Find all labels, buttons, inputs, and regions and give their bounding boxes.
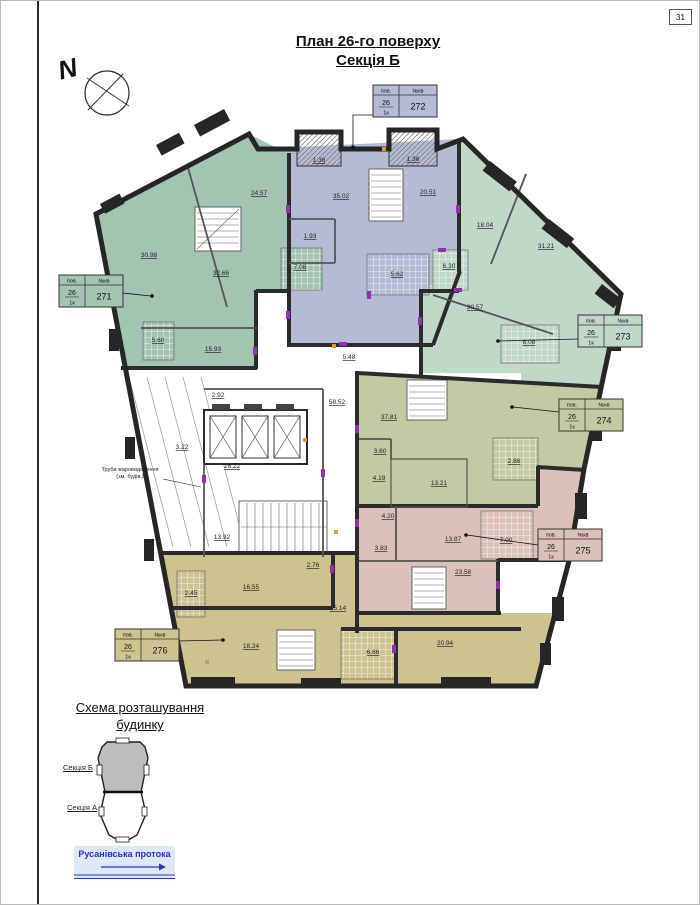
room-area-label: 8.08 bbox=[523, 339, 536, 346]
room-area-label: 15.93 bbox=[205, 346, 222, 353]
apartment-tag-276: пов. №кв 26 1к 276 bbox=[115, 629, 179, 661]
svg-text:пов.: пов. bbox=[67, 279, 78, 285]
room-area-label: 7.00 bbox=[500, 537, 513, 544]
svg-text:№кв: №кв bbox=[577, 533, 588, 539]
room-area-label: 13.21 bbox=[431, 480, 448, 487]
svg-text:пов.: пов. bbox=[381, 89, 392, 95]
room-area-label: 20.51 bbox=[420, 189, 437, 196]
apartment-number: 274 bbox=[596, 416, 611, 426]
svg-text:пов.: пов. bbox=[586, 319, 597, 325]
river-label: Русанівська протока bbox=[74, 849, 175, 859]
room-area-label: 24.57 bbox=[251, 190, 268, 197]
section-a-label: Секція А bbox=[67, 803, 97, 812]
room-area-label: 37.81 bbox=[381, 414, 398, 421]
room-area-label: 23.58 bbox=[455, 569, 472, 576]
room-area-label: 4.20 bbox=[382, 513, 395, 520]
building-scheme bbox=[97, 738, 149, 842]
svg-text:1к: 1к bbox=[548, 555, 554, 561]
room-area-label: 4.19 bbox=[373, 475, 386, 482]
room-area-label: 18.04 bbox=[477, 222, 494, 229]
section-b-label: Секція Б bbox=[63, 763, 93, 772]
room-area-label: 1.36 bbox=[407, 156, 420, 163]
apartment-number: 272 bbox=[410, 102, 425, 112]
svg-text:1к: 1к bbox=[383, 111, 389, 117]
scheme-title-line-2: будинку bbox=[45, 716, 235, 733]
svg-text:пов.: пов. bbox=[567, 403, 578, 409]
room-area-label: 6.30 bbox=[443, 263, 456, 270]
pipes-note: Труби жаровидалення (зм. будів.) bbox=[91, 467, 169, 481]
room-area-label: 1.36 bbox=[313, 157, 326, 164]
room-area-label: 5.60 bbox=[152, 337, 165, 344]
room-area-label: 1.93 bbox=[304, 233, 317, 240]
scheme-title-line-1: Схема розташування bbox=[45, 699, 235, 716]
apartment-number: 271 bbox=[96, 292, 111, 302]
drawing-page: 31 План 26-го поверху Секція Б bbox=[0, 0, 700, 905]
svg-text:№кв: №кв bbox=[598, 403, 609, 409]
scheme-section-b-shape bbox=[98, 742, 148, 792]
svg-text:26: 26 bbox=[382, 100, 390, 107]
svg-text:№кв: №кв bbox=[98, 279, 109, 285]
room-area-label: 7.08 bbox=[294, 264, 307, 271]
svg-text:26: 26 bbox=[68, 290, 76, 297]
svg-text:26: 26 bbox=[587, 330, 595, 337]
room-area-label: 2.76 bbox=[307, 562, 320, 569]
apartment-tag-272: пов. №кв 26 1к 272 bbox=[373, 85, 437, 117]
svg-text:26: 26 bbox=[547, 544, 555, 551]
room-area-label: 31.21 bbox=[538, 243, 555, 250]
apartment-tag-274: пов. №кв 26 1к 274 bbox=[559, 399, 623, 431]
room-area-label: 3.83 bbox=[375, 545, 388, 552]
svg-text:пов.: пов. bbox=[123, 633, 134, 639]
floor-plan-drawing: 30.98 32.66 24.57 15.93 7.08 5.60 35.02 … bbox=[1, 1, 700, 905]
apartment-tag-273: пов. №кв 26 1к 273 bbox=[578, 315, 642, 347]
elevator-core bbox=[204, 404, 307, 464]
room-area-label: 18.24 bbox=[243, 643, 260, 650]
room-area-label: 5.48 bbox=[343, 354, 356, 361]
room-area-label: 32.66 bbox=[213, 270, 230, 277]
compass-icon: N bbox=[55, 52, 129, 115]
svg-text:1к: 1к bbox=[588, 341, 594, 347]
room-area-label: 20.94 bbox=[437, 640, 454, 647]
svg-text:№кв: №кв bbox=[154, 633, 165, 639]
scheme-title: Схема розташування будинку bbox=[45, 699, 235, 733]
room-area-label: 15.14 bbox=[330, 605, 347, 612]
svg-text:1к: 1к bbox=[69, 301, 75, 307]
room-area-label: 2.86 bbox=[508, 458, 521, 465]
apartment-number: 276 bbox=[152, 646, 167, 656]
room-area-label: 16.22 bbox=[224, 463, 241, 470]
room-area-label: 5.62 bbox=[391, 271, 404, 278]
room-area-label: 6.86 bbox=[367, 649, 380, 656]
room-area-label: 13.87 bbox=[445, 536, 462, 543]
room-area-label: 3.60 bbox=[374, 448, 387, 455]
apartment-tag-271: пов. №кв 26 1к 271 bbox=[59, 275, 123, 307]
room-area-label: 3.22 bbox=[176, 444, 189, 451]
apartment-number: 273 bbox=[615, 332, 630, 342]
room-area-label: 2.45 bbox=[185, 590, 198, 597]
apartment-271-region bbox=[96, 134, 289, 369]
svg-text:1к: 1к bbox=[125, 655, 131, 661]
room-area-label: 30.57 bbox=[467, 304, 484, 311]
svg-text:№кв: №кв bbox=[617, 319, 628, 325]
room-area-label: 58.52 bbox=[329, 399, 346, 406]
apartment-number: 275 bbox=[575, 546, 590, 556]
room-area-label: 13.92 bbox=[214, 534, 231, 541]
room-area-label: 35.02 bbox=[333, 193, 350, 200]
room-area-label: 2.92 bbox=[212, 392, 225, 399]
scheme-section-a-shape bbox=[100, 792, 146, 840]
apartment-tag-275: пов. №кв 26 1к 275 bbox=[538, 529, 602, 561]
svg-text:26: 26 bbox=[568, 414, 576, 421]
room-area-label: 30.98 bbox=[141, 252, 158, 259]
room-area-label: 16.55 bbox=[243, 584, 260, 591]
north-label: N bbox=[55, 52, 82, 86]
svg-text:№кв: №кв bbox=[412, 89, 423, 95]
svg-text:1к: 1к bbox=[569, 425, 575, 431]
svg-text:26: 26 bbox=[124, 644, 132, 651]
svg-text:пов.: пов. bbox=[546, 533, 557, 539]
